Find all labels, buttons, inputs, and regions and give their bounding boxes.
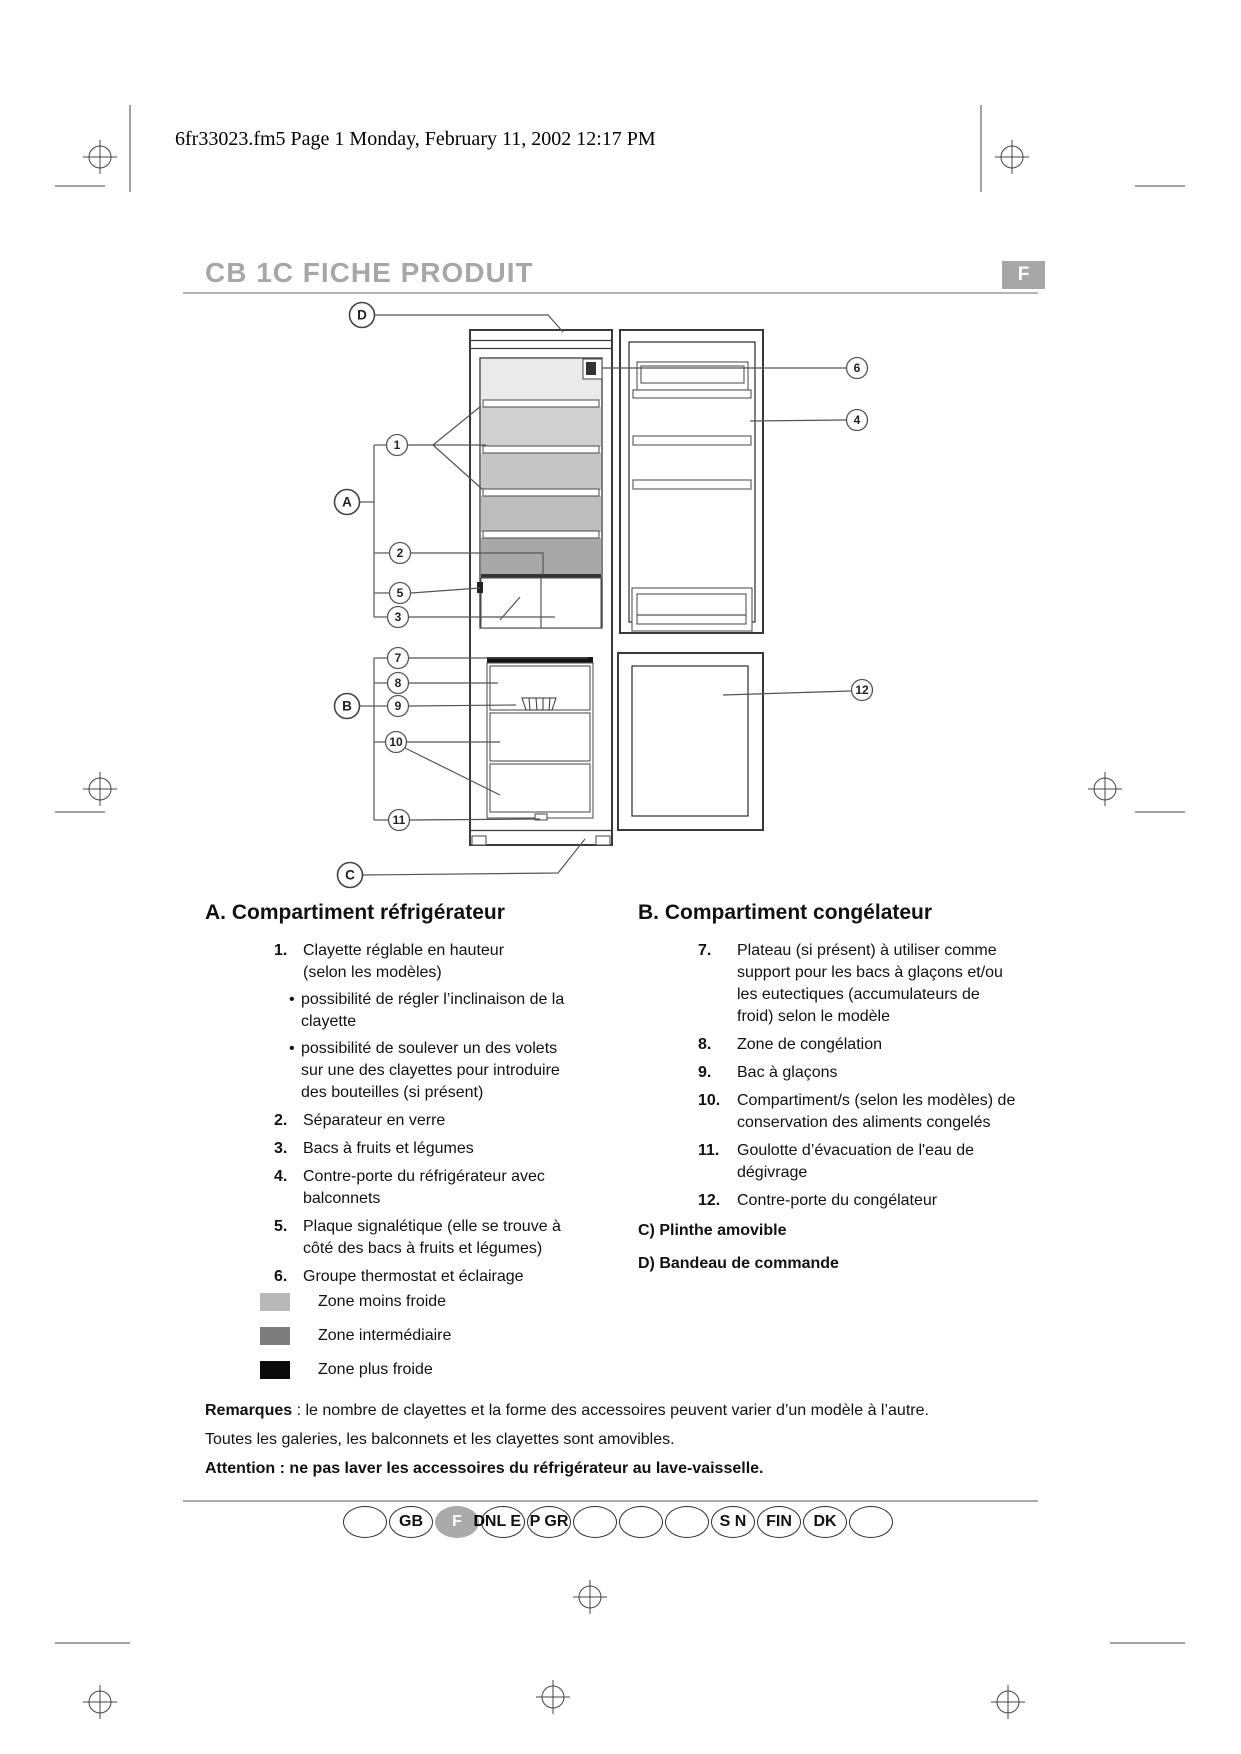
- item-body: Compartiment/s (selon les modèles) decon…: [737, 1090, 1048, 1134]
- language-oval-S-N: S N: [711, 1506, 755, 1538]
- title-rule: [183, 292, 1038, 294]
- item-body: Plaque signalétique (elle se trouve àcôt…: [303, 1216, 605, 1260]
- legend-label: Zone intermédiaire: [318, 1327, 451, 1345]
- language-label: DK: [813, 1513, 836, 1531]
- list-item: 2.Séparateur en verre: [205, 1110, 605, 1132]
- remarks-text: : le nombre de clayettes et la forme des…: [292, 1402, 929, 1419]
- remarks-line1: Remarques : le nombre de clayettes et la…: [205, 1396, 985, 1425]
- section-extra-line: D) Bandeau de commande: [638, 1253, 839, 1275]
- callout-label-7: 7: [395, 651, 402, 665]
- temperature-legend: Zone moins froideZone intermédiaireZone …: [260, 1293, 451, 1395]
- remarks-line2: Toutes les galeries, les balconnets et l…: [205, 1425, 985, 1454]
- language-label: GB: [399, 1513, 423, 1531]
- item-number: 6.: [274, 1266, 287, 1288]
- language-oval-F: FD: [435, 1506, 479, 1538]
- callout-label-B: B: [342, 699, 352, 714]
- document-page: { "page": { "header": "6fr33023.fm5 Page…: [0, 0, 1241, 1754]
- section-a-heading: A. Compartiment réfrigérateur: [205, 901, 505, 925]
- item-body: Groupe thermostat et éclairage: [303, 1266, 605, 1288]
- item-text: Compartiment/s (selon les modèles) decon…: [737, 1090, 1048, 1134]
- item-body: Séparateur en verre: [303, 1110, 605, 1132]
- language-oval-FIN: FIN: [757, 1506, 801, 1538]
- item-text: Contre-porte du congélateur: [737, 1190, 1048, 1212]
- section-b-list: 7.Plateau (si présent) à utiliser commes…: [638, 940, 1048, 1218]
- legend-swatch: [260, 1327, 290, 1345]
- item-number: 12.: [698, 1190, 720, 1212]
- item-bullet: •possibilité de soulever un des voletssu…: [289, 1038, 605, 1104]
- language-label: P GR: [530, 1513, 569, 1531]
- legend-row: Zone plus froide: [260, 1361, 451, 1379]
- bullet-dot-icon: •: [289, 989, 301, 1033]
- glass-separator: [481, 574, 601, 578]
- callout-label-4: 4: [854, 413, 861, 427]
- item-body: Bac à glaçons: [737, 1062, 1048, 1084]
- language-oval-GB: GB: [389, 1506, 433, 1538]
- language-label: F: [452, 1513, 462, 1531]
- crisper-drawer: [481, 578, 601, 628]
- door-rail: [633, 480, 751, 489]
- item-text: Goulotte d’évacuation de l'eau dedégivra…: [737, 1140, 1048, 1184]
- cold-zones: [481, 359, 601, 578]
- callout-label-12: 12: [855, 683, 869, 697]
- language-oval-DK: DK: [803, 1506, 847, 1538]
- item-body: Plateau (si présent) à utiliser commesup…: [737, 940, 1048, 1028]
- list-item: 6.Groupe thermostat et éclairage: [205, 1266, 605, 1288]
- item-number: 5.: [274, 1216, 287, 1238]
- item-body: Contre-porte du réfrigérateur avecbalcon…: [303, 1166, 605, 1210]
- item-body: Bacs à fruits et légumes: [303, 1138, 605, 1160]
- legend-label: Zone plus froide: [318, 1361, 433, 1379]
- language-label: FIN: [766, 1513, 792, 1531]
- item-body: Contre-porte du congélateur: [737, 1190, 1048, 1212]
- language-oval-NL-E: NL E: [481, 1506, 525, 1538]
- section-a-list: 1.Clayette réglable en hauteur(selon les…: [205, 940, 605, 1294]
- item-body: Zone de congélation: [737, 1034, 1048, 1056]
- legend-row: Zone intermédiaire: [260, 1327, 451, 1345]
- item-text: Plateau (si présent) à utiliser commesup…: [737, 940, 1048, 1028]
- freezer-compartment: [487, 657, 593, 820]
- list-item: 5.Plaque signalétique (elle se trouve àc…: [205, 1216, 605, 1260]
- language-oval-empty: [665, 1506, 709, 1538]
- fridge-diagram: D A B C 1 2 5 3 7 8 9 10 11 6 4 12: [300, 295, 880, 895]
- legend-row: Zone moins froide: [260, 1293, 451, 1311]
- list-item: 1.Clayette réglable en hauteur(selon les…: [205, 940, 605, 1104]
- list-item: 11.Goulotte d’évacuation de l'eau dedégi…: [638, 1140, 1048, 1184]
- item-text: Groupe thermostat et éclairage: [303, 1266, 605, 1288]
- legend-swatch: [260, 1361, 290, 1379]
- callout-label-C: C: [345, 868, 355, 883]
- language-oval-empty: [619, 1506, 663, 1538]
- bullet-text: possibilité de régler l’inclinaison de l…: [301, 989, 564, 1033]
- item-number: 2.: [274, 1110, 287, 1132]
- item-text: Séparateur en verre: [303, 1110, 605, 1132]
- item-body: Goulotte d’évacuation de l'eau dedégivra…: [737, 1140, 1048, 1184]
- callout-label-3: 3: [395, 610, 402, 624]
- language-label: S N: [720, 1513, 747, 1531]
- item-number: 4.: [274, 1166, 287, 1188]
- callout-label-5: 5: [397, 586, 404, 600]
- item-text: Bac à glaçons: [737, 1062, 1048, 1084]
- callout-label-9: 9: [395, 699, 402, 713]
- callout-label-6: 6: [854, 361, 861, 375]
- item-body: Clayette réglable en hauteur(selon les m…: [303, 940, 605, 1104]
- callout-label-10: 10: [389, 735, 403, 749]
- item-number: 10.: [698, 1090, 720, 1112]
- list-item: 4.Contre-porte du réfrigérateur avecbalc…: [205, 1166, 605, 1210]
- callout-label-2: 2: [397, 546, 404, 560]
- language-oval-empty: [343, 1506, 387, 1538]
- door-rail: [633, 436, 751, 445]
- item-number: 1.: [274, 940, 287, 962]
- door-rail: [633, 390, 751, 398]
- freezer-door: [618, 653, 763, 830]
- page-title: CB 1C FICHE PRODUIT: [205, 257, 534, 289]
- attention-note: Attention : ne pas laver les accessoires…: [205, 1460, 763, 1478]
- list-item: 9.Bac à glaçons: [638, 1062, 1048, 1084]
- item-text: Bacs à fruits et légumes: [303, 1138, 605, 1160]
- item-text: Zone de congélation: [737, 1034, 1048, 1056]
- item-number: 3.: [274, 1138, 287, 1160]
- item-number: 9.: [698, 1062, 711, 1084]
- list-item: 10.Compartiment/s (selon les modèles) de…: [638, 1090, 1048, 1134]
- ice-tray-icon: [522, 698, 556, 710]
- remarks-note: Remarques : le nombre de clayettes et la…: [205, 1396, 985, 1454]
- callout-label-1: 1: [394, 438, 401, 452]
- bullet-dot-icon: •: [289, 1038, 301, 1104]
- legend-swatch: [260, 1293, 290, 1311]
- freezer-drawer: [490, 764, 590, 812]
- language-oval-P-GR: P GR: [527, 1506, 571, 1538]
- item-number: 8.: [698, 1034, 711, 1056]
- item-bullet: •possibilité de régler l’inclinaison de …: [289, 989, 605, 1033]
- callout-label-11: 11: [393, 813, 406, 827]
- item-number: 7.: [698, 940, 711, 962]
- language-badge: F: [1002, 261, 1045, 289]
- section-b-extras: C) Plinthe amovibleD) Bandeau de command…: [638, 1220, 839, 1286]
- thermostat-box: [583, 359, 602, 379]
- language-oval-empty: [573, 1506, 617, 1538]
- list-item: 3.Bacs à fruits et légumes: [205, 1138, 605, 1160]
- item-text: Clayette réglable en hauteur(selon les m…: [303, 940, 605, 984]
- language-label: NL E: [485, 1513, 521, 1531]
- callout-label-A: A: [342, 495, 352, 510]
- remarks-label: Remarques: [205, 1402, 292, 1419]
- language-oval-empty: [849, 1506, 893, 1538]
- callout-label-8: 8: [395, 676, 402, 690]
- item-text: Contre-porte du réfrigérateur avecbalcon…: [303, 1166, 605, 1210]
- callout-label-D: D: [357, 308, 367, 323]
- bullet-text: possibilité de soulever un des voletssur…: [301, 1038, 560, 1104]
- freezer-drawer: [490, 713, 590, 761]
- rating-plate: [477, 582, 483, 593]
- section-extra-line: C) Plinthe amovible: [638, 1220, 839, 1242]
- language-ovals: GBFDNL EP GRS NFINDK: [343, 1506, 893, 1538]
- section-b-heading: B. Compartiment congélateur: [638, 901, 932, 925]
- list-item: 12.Contre-porte du congélateur: [638, 1190, 1048, 1212]
- list-item: 7.Plateau (si présent) à utiliser commes…: [638, 940, 1048, 1028]
- print-header-line: 6fr33023.fm5 Page 1 Monday, February 11,…: [175, 128, 656, 151]
- footer-rule: [183, 1500, 1038, 1502]
- item-number: 11.: [698, 1140, 719, 1162]
- list-item: 8.Zone de congélation: [638, 1034, 1048, 1056]
- item-text: Plaque signalétique (elle se trouve àcôt…: [303, 1216, 605, 1260]
- legend-label: Zone moins froide: [318, 1293, 446, 1311]
- fridge-door: [620, 330, 763, 633]
